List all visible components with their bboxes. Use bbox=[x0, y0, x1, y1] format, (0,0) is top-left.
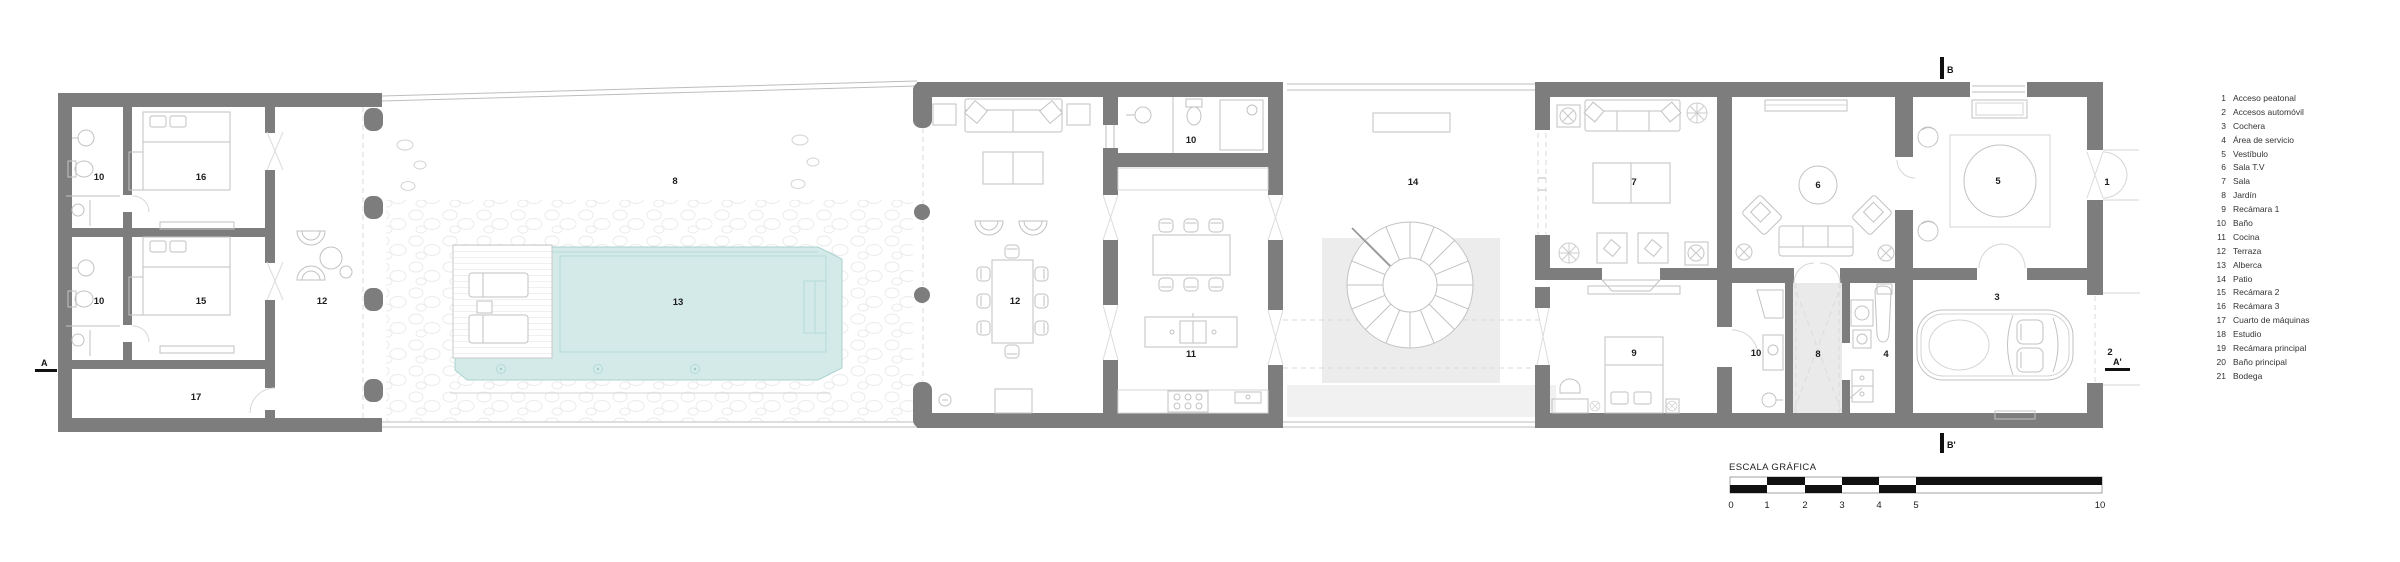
floor-plan-sheet: 10 16 10 15 17 12 8 13 12 10 11 14 7 9 1… bbox=[0, 0, 2400, 562]
room-label-acceso-automovil: 2 bbox=[2107, 347, 2112, 358]
legend-item-2: 2Accesos automóvil bbox=[2206, 106, 2310, 120]
legend-item-4: 4Área de servicio bbox=[2206, 134, 2310, 148]
legend-number: 20 bbox=[2206, 356, 2226, 370]
bedroom2-furniture bbox=[129, 237, 234, 353]
legend-label: Cochera bbox=[2233, 120, 2265, 134]
legend-label: Estudio bbox=[2233, 328, 2261, 342]
legend-label: Cuarto de máquinas bbox=[2233, 314, 2310, 328]
legend-number: 1 bbox=[2206, 92, 2226, 106]
legend-label: Acceso peatonal bbox=[2233, 92, 2296, 106]
scale-tick-4: 4 bbox=[1876, 500, 1881, 511]
room-label-vestibulo: 5 bbox=[1995, 176, 2001, 187]
legend-label: Recámara principal bbox=[2233, 342, 2306, 356]
legend-item-15: 15Recámara 2 bbox=[2206, 286, 2310, 300]
legend-item-14: 14Patio bbox=[2206, 273, 2310, 287]
room-label-alberca: 13 bbox=[673, 297, 684, 308]
legend-item-19: 19Recámara principal bbox=[2206, 342, 2310, 356]
legend-number: 5 bbox=[2206, 148, 2226, 162]
legend-label: Jardín bbox=[2233, 189, 2257, 203]
section-marker-a-prime: A' bbox=[2113, 357, 2122, 367]
legend-label: Recámara 3 bbox=[2233, 300, 2279, 314]
legend-number: 16 bbox=[2206, 300, 2226, 314]
room-label-bano-1: 10 bbox=[1751, 348, 1762, 359]
legend-number: 13 bbox=[2206, 259, 2226, 273]
legend-item-5: 5Vestíbulo bbox=[2206, 148, 2310, 162]
pool-deck bbox=[453, 245, 552, 358]
dining-terrace-furniture bbox=[933, 99, 1090, 413]
legend: 1Acceso peatonal 2Accesos automóvil 3Coc… bbox=[2206, 92, 2310, 384]
room-label-bano-cocina: 10 bbox=[1186, 135, 1197, 146]
legend-label: Área de servicio bbox=[2233, 134, 2294, 148]
legend-number: 10 bbox=[2206, 217, 2226, 231]
room-label-patio: 14 bbox=[1408, 177, 1419, 188]
spiral-staircase bbox=[1347, 222, 1473, 348]
legend-number: 7 bbox=[2206, 175, 2226, 189]
legend-label: Vestíbulo bbox=[2233, 148, 2268, 162]
section-marker-b-prime: B' bbox=[1947, 440, 1956, 450]
legend-label: Accesos automóvil bbox=[2233, 106, 2304, 120]
legend-item-7: 7Sala bbox=[2206, 175, 2310, 189]
legend-number: 11 bbox=[2206, 231, 2226, 245]
bedroom3-furniture bbox=[129, 112, 234, 229]
legend-number: 15 bbox=[2206, 286, 2226, 300]
pool bbox=[453, 245, 842, 380]
floor-plan-drawing: 10 16 10 15 17 12 8 13 12 10 11 14 7 9 1… bbox=[0, 0, 2400, 562]
room-label-jardin: 8 bbox=[672, 176, 677, 187]
garage-car bbox=[1917, 310, 2073, 380]
legend-label: Cocina bbox=[2233, 231, 2259, 245]
legend-number: 3 bbox=[2206, 120, 2226, 134]
legend-item-6: 6Sala T.V bbox=[2206, 161, 2310, 175]
room-label-sala-tv: 6 bbox=[1815, 180, 1820, 191]
legend-number: 2 bbox=[2206, 106, 2226, 120]
legend-label: Sala bbox=[2233, 175, 2250, 189]
room-label-recamara-2: 15 bbox=[196, 296, 207, 307]
section-marker-b: B bbox=[1947, 65, 1954, 75]
scale-bar: ESCALA GRÁFICA 0 1 2 3 4 5 10 bbox=[1728, 462, 2105, 511]
scale-tick-10: 10 bbox=[2095, 500, 2106, 511]
legend-label: Bodega bbox=[2233, 370, 2262, 384]
legend-item-13: 13Alberca bbox=[2206, 259, 2310, 273]
legend-label: Alberca bbox=[2233, 259, 2262, 273]
bathroom2-fixtures bbox=[66, 260, 120, 356]
legend-item-12: 12Terraza bbox=[2206, 245, 2310, 259]
room-label-cocina: 11 bbox=[1186, 349, 1197, 360]
scale-tick-3: 3 bbox=[1839, 500, 1844, 511]
legend-number: 18 bbox=[2206, 328, 2226, 342]
legend-item-21: 21Bodega bbox=[2206, 370, 2310, 384]
room-label-sala: 7 bbox=[1631, 177, 1636, 188]
legend-number: 17 bbox=[2206, 314, 2226, 328]
legend-label: Terraza bbox=[2233, 245, 2261, 259]
legend-item-17: 17Cuarto de máquinas bbox=[2206, 314, 2310, 328]
room-label-recamara-3: 16 bbox=[196, 172, 207, 183]
vestibule-furniture bbox=[1918, 100, 2050, 419]
legend-number: 6 bbox=[2206, 161, 2226, 175]
kitchen-furniture bbox=[1118, 168, 1268, 413]
room-label-acceso-peatonal: 1 bbox=[2104, 177, 2110, 188]
bedroom1-furniture bbox=[1552, 286, 1680, 413]
legend-item-3: 3Cochera bbox=[2206, 120, 2310, 134]
legend-number: 19 bbox=[2206, 342, 2226, 356]
room-label-bano-2: 10 bbox=[94, 296, 105, 307]
room-label-bano-3: 10 bbox=[94, 172, 105, 183]
room-label-area-servicio: 4 bbox=[1883, 349, 1889, 360]
legend-label: Sala T.V bbox=[2233, 161, 2265, 175]
legend-item-20: 20Baño principal bbox=[2206, 356, 2310, 370]
legend-item-10: 10Baño bbox=[2206, 217, 2310, 231]
room-label-cuarto-maquinas: 17 bbox=[191, 392, 202, 403]
scale-tick-2: 2 bbox=[1802, 500, 1807, 511]
scale-tick-5: 5 bbox=[1913, 500, 1918, 511]
legend-item-11: 11Cocina bbox=[2206, 231, 2310, 245]
scale-tick-0: 0 bbox=[1728, 500, 1733, 511]
room-label-jardin-servicio: 8 bbox=[1815, 349, 1820, 360]
scale-tick-1: 1 bbox=[1764, 500, 1769, 511]
legend-number: 14 bbox=[2206, 273, 2226, 287]
legend-item-9: 9Recámara 1 bbox=[2206, 203, 2310, 217]
legend-number: 12 bbox=[2206, 245, 2226, 259]
legend-label: Recámara 2 bbox=[2233, 286, 2279, 300]
legend-item-1: 1Acceso peatonal bbox=[2206, 92, 2310, 106]
west-terrace-furniture bbox=[297, 231, 352, 280]
patio-elements bbox=[1347, 113, 1473, 348]
room-label-cochera: 3 bbox=[1994, 292, 1999, 303]
legend-item-16: 16Recámara 3 bbox=[2206, 300, 2310, 314]
legend-label: Patio bbox=[2233, 273, 2252, 287]
scale-bar-title: ESCALA GRÁFICA bbox=[1729, 462, 1817, 473]
legend-label: Baño principal bbox=[2233, 356, 2287, 370]
legend-item-8: 8Jardín bbox=[2206, 189, 2310, 203]
legend-label: Baño bbox=[2233, 217, 2253, 231]
room-label-terraza-comedor: 12 bbox=[1010, 296, 1021, 307]
section-marker-a: A bbox=[41, 358, 48, 368]
legend-number: 9 bbox=[2206, 203, 2226, 217]
legend-item-18: 18Estudio bbox=[2206, 328, 2310, 342]
legend-number: 8 bbox=[2206, 189, 2226, 203]
legend-number: 21 bbox=[2206, 370, 2226, 384]
legend-number: 4 bbox=[2206, 134, 2226, 148]
service-room-fixtures bbox=[1850, 284, 1892, 402]
legend-label: Recámara 1 bbox=[2233, 203, 2279, 217]
room-label-recamara-1: 9 bbox=[1631, 348, 1636, 359]
room-label-terraza-poniente: 12 bbox=[317, 296, 328, 307]
service-courtyard-surface bbox=[1793, 283, 1842, 413]
